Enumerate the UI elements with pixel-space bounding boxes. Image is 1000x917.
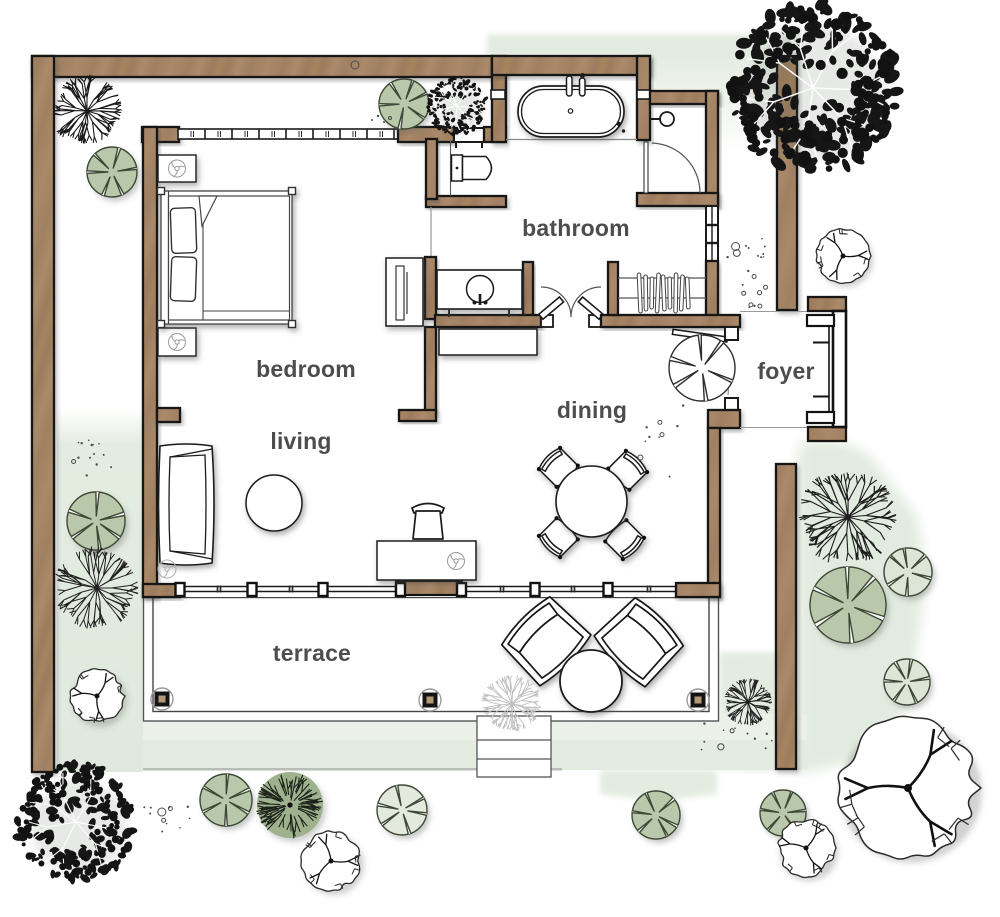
svg-text:living: living <box>270 428 331 454</box>
svg-text:dining: dining <box>557 397 627 423</box>
svg-text:bathroom: bathroom <box>522 215 630 241</box>
svg-text:terrace: terrace <box>273 640 351 666</box>
svg-text:foyer: foyer <box>757 358 814 384</box>
svg-text:bedroom: bedroom <box>256 356 356 382</box>
